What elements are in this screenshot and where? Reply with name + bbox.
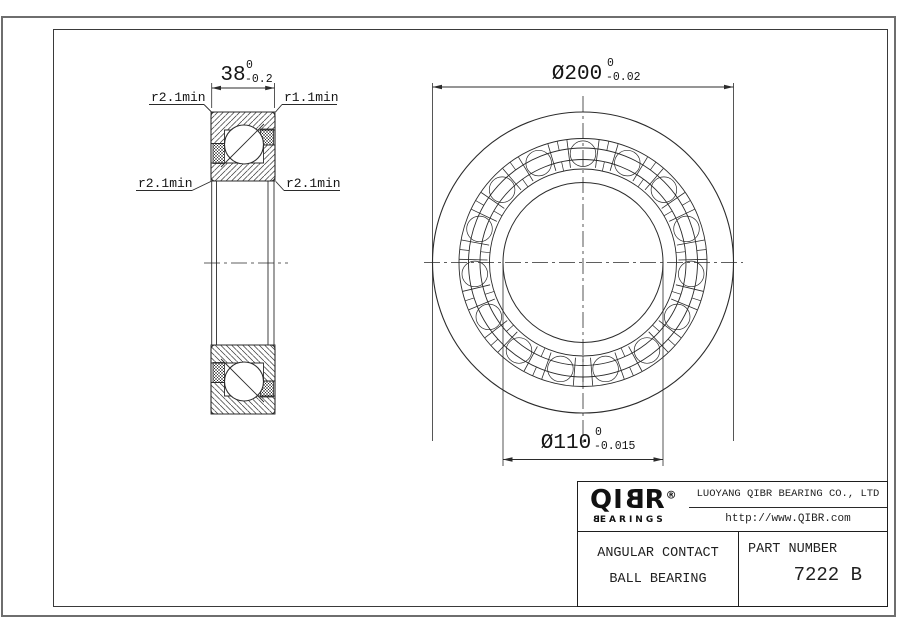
registered-trademark-symbol: ® (666, 488, 677, 501)
radius-label-mid-right: r2.1min (286, 176, 341, 191)
bore-dim-value: Ø110 (541, 432, 591, 455)
arrowhead (265, 86, 274, 91)
radius-label-mid-left: r2.1min (138, 176, 193, 191)
radius-label-top-right: r1.1min (284, 90, 339, 105)
company-name: LUOYANG QIBR BEARING CO., LTD (689, 482, 887, 508)
product-line1: ANGULAR CONTACT (578, 541, 738, 567)
arrowhead (433, 85, 443, 90)
width-dim-upper-tol: 0 (246, 59, 253, 72)
company-info: LUOYANG QIBR BEARING CO., LTD http://www… (689, 482, 887, 531)
bore-dim-upper-tol: 0 (595, 426, 602, 439)
product-line2: BALL BEARING (578, 567, 738, 593)
width-dim-value: 38 (220, 64, 245, 87)
title-block: QIBR® BEARINGS LUOYANG QIBR BEARING CO.,… (577, 481, 888, 607)
logo-brand: QIBR® (590, 487, 689, 514)
engineering-drawing-page: { "drawing": { "width_dim": { "value": "… (0, 0, 900, 636)
width-dim-lower-tol: -0.2 (245, 73, 273, 86)
dim-width: 38 0 -0.2 (212, 59, 275, 108)
product-description: ANGULAR CONTACT BALL BEARING (578, 532, 739, 606)
section-bottom-mirror (211, 345, 275, 414)
logo-brand-text: QIBR (590, 485, 666, 515)
part-number-value: 7222 B (739, 557, 887, 586)
section-view (204, 112, 288, 414)
od-dim-value: Ø200 (552, 63, 602, 86)
title-block-header-row: QIBR® BEARINGS LUOYANG QIBR BEARING CO.,… (578, 482, 887, 532)
qibr-logo: QIBR® BEARINGS (578, 482, 689, 531)
logo-subtitle: BEARINGS (590, 515, 689, 525)
company-website: http://www.QIBR.com (689, 508, 887, 531)
cage-section-left (213, 144, 225, 164)
arrowhead (654, 457, 664, 462)
arrowhead (503, 457, 513, 462)
arrowhead (724, 85, 734, 90)
part-number-label: PART NUMBER (739, 532, 887, 557)
bore-dim-lower-tol: -0.015 (594, 440, 636, 453)
part-number-cell: PART NUMBER 7222 B (739, 532, 887, 606)
title-block-detail-row: ANGULAR CONTACT BALL BEARING PART NUMBER… (578, 532, 887, 606)
radius-label-top-left: r2.1min (151, 90, 206, 105)
front-view (424, 96, 743, 448)
od-dim-lower-tol: -0.02 (606, 71, 641, 84)
od-dim-upper-tol: 0 (607, 57, 614, 70)
